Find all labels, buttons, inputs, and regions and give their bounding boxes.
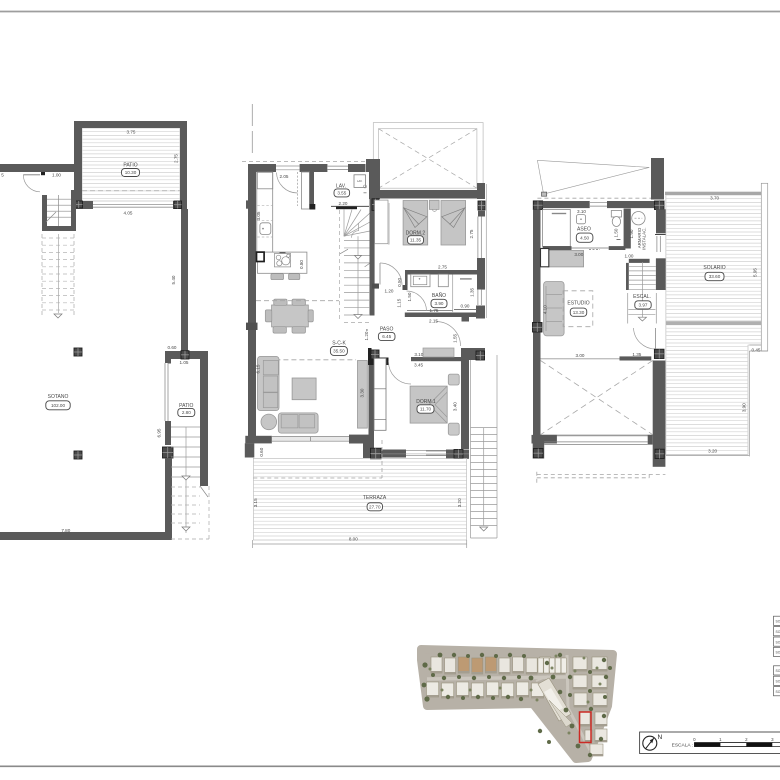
svg-text:SO: SO <box>776 680 780 684</box>
svg-text:SOTANO: SOTANO <box>48 394 69 400</box>
svg-text:S-C-K: S-C-K <box>332 340 346 346</box>
svg-text:0.80: 0.80 <box>299 260 304 269</box>
svg-text:SO: SO <box>776 651 780 655</box>
svg-text:3.00: 3.00 <box>574 252 583 257</box>
svg-text:2.75: 2.75 <box>438 265 447 270</box>
svg-text:ESCALA :: ESCALA : <box>672 742 693 748</box>
svg-text:3.10: 3.10 <box>577 209 586 214</box>
svg-text:0.60: 0.60 <box>259 447 264 456</box>
svg-text:13.30: 13.30 <box>573 310 585 315</box>
svg-text:1.55: 1.55 <box>453 333 458 342</box>
svg-text:3.00: 3.00 <box>576 353 585 358</box>
svg-text:3.70: 3.70 <box>710 196 719 201</box>
svg-text:1.50: 1.50 <box>407 292 412 301</box>
svg-text:4.10: 4.10 <box>542 305 547 314</box>
svg-text:11.35: 11.35 <box>410 238 422 243</box>
svg-text:0.50: 0.50 <box>397 277 402 286</box>
svg-text:PATIO: PATIO <box>123 162 137 168</box>
svg-text:1.00: 1.00 <box>625 254 634 259</box>
svg-text:3.40: 3.40 <box>452 402 457 411</box>
svg-text:DORM.1: DORM.1 <box>416 399 436 405</box>
svg-text:SO: SO <box>776 620 780 624</box>
svg-text:1.05: 1.05 <box>180 360 189 365</box>
svg-text:ESTUDIO: ESTUDIO <box>567 300 589 306</box>
svg-text:0.60: 0.60 <box>168 345 177 350</box>
svg-text:BAÑO: BAÑO <box>432 292 446 299</box>
svg-text:INSTALAC.: INSTALAC. <box>642 228 647 250</box>
svg-text:3.05: 3.05 <box>256 211 261 220</box>
svg-text:2.75: 2.75 <box>174 154 179 163</box>
svg-text:2.80: 2.80 <box>182 410 191 415</box>
svg-text:ESCAL.: ESCAL. <box>633 294 651 300</box>
svg-text:0.45: 0.45 <box>752 348 761 353</box>
svg-text:4.50: 4.50 <box>580 235 589 240</box>
svg-text:3.97: 3.97 <box>639 303 648 308</box>
svg-text:6.15: 6.15 <box>255 364 260 373</box>
svg-text:TERRAZA: TERRAZA <box>363 495 387 501</box>
svg-text:6.95: 6.95 <box>156 428 161 437</box>
svg-text:4.05: 4.05 <box>124 211 133 216</box>
svg-text:3.10: 3.10 <box>414 352 423 357</box>
svg-text:1.75: 1.75 <box>430 308 439 313</box>
svg-text:35.50: 35.50 <box>333 349 345 354</box>
svg-text:3.15: 3.15 <box>253 498 258 507</box>
svg-text:ASEO: ASEO <box>577 226 591 232</box>
svg-text:N: N <box>657 734 662 741</box>
svg-text:2.15: 2.15 <box>429 318 438 323</box>
svg-text:11.70: 11.70 <box>420 407 432 412</box>
svg-text:5.40: 5.40 <box>171 275 176 284</box>
svg-text:1.35: 1.35 <box>632 352 641 357</box>
svg-text:SO: SO <box>776 669 780 673</box>
svg-text:10.30: 10.30 <box>125 170 137 175</box>
svg-text:1.35: 1.35 <box>470 287 475 296</box>
svg-text:7.80: 7.80 <box>61 528 70 533</box>
svg-text:33.60: 33.60 <box>709 274 721 279</box>
svg-text:8.00: 8.00 <box>349 537 358 542</box>
svg-text:2.75: 2.75 <box>469 229 474 238</box>
svg-text:3.55: 3.55 <box>337 191 346 196</box>
svg-text:3.45: 3.45 <box>414 362 423 367</box>
svg-text:SO: SO <box>776 640 780 644</box>
svg-text:0.90: 0.90 <box>461 303 470 308</box>
svg-text:1.20: 1.20 <box>385 289 394 294</box>
svg-text:102.00: 102.00 <box>51 403 65 408</box>
svg-text:3.90: 3.90 <box>741 403 746 412</box>
svg-text:5.95: 5.95 <box>753 268 758 277</box>
svg-text:3.90: 3.90 <box>435 301 444 306</box>
svg-text:PATIO: PATIO <box>179 403 193 409</box>
svg-text:1.00: 1.00 <box>52 173 61 178</box>
svg-text:6.45: 6.45 <box>382 334 391 339</box>
svg-text:27.70: 27.70 <box>369 505 381 510</box>
svg-text:1.20: 1.20 <box>364 331 369 340</box>
svg-text:1.15: 1.15 <box>396 298 401 307</box>
svg-text:3.20: 3.20 <box>457 498 462 507</box>
svg-text:1.90: 1.90 <box>629 229 634 238</box>
svg-text:5: 5 <box>1 173 4 178</box>
svg-text:PASO: PASO <box>380 327 394 333</box>
svg-text:2.20: 2.20 <box>339 201 348 206</box>
svg-text:3.20: 3.20 <box>708 448 717 453</box>
svg-text:SO: SO <box>776 690 780 694</box>
svg-text:3.30: 3.30 <box>359 388 364 397</box>
svg-text:3.75: 3.75 <box>127 130 136 135</box>
svg-text:LAV.: LAV. <box>357 179 362 183</box>
svg-text:1.50: 1.50 <box>614 228 619 237</box>
svg-text:SO: SO <box>776 630 780 634</box>
svg-text:2.05: 2.05 <box>280 174 289 179</box>
svg-text:SOLARIO: SOLARIO <box>703 265 725 271</box>
